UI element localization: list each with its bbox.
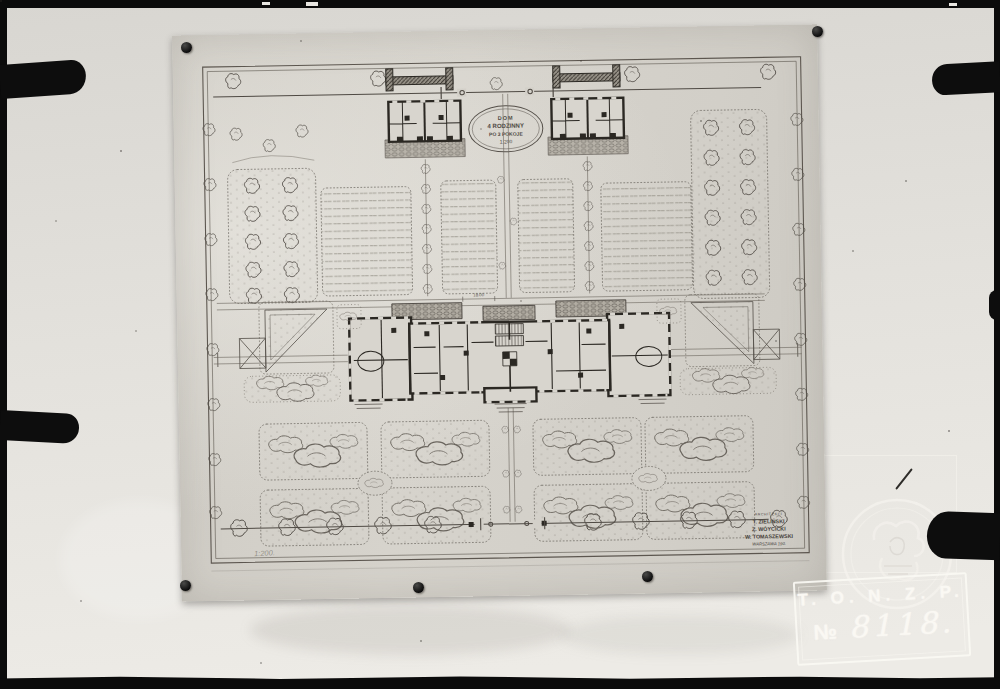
arbor-right	[753, 329, 780, 359]
tree-allee-right	[583, 156, 594, 293]
outbuilding-left	[384, 101, 465, 158]
film-edge-top	[0, 0, 1000, 8]
signature-place: WARSZAWA 190.	[752, 541, 786, 547]
push-pin	[812, 26, 823, 37]
film-edge-bottom	[0, 675, 1000, 689]
orchard-right	[690, 109, 769, 298]
archive-stamp: T. O. N. Z. P. № 8118.	[793, 572, 971, 666]
garden-wall-left	[386, 68, 453, 91]
orchard-left	[227, 125, 318, 304]
flower-bed-left	[244, 375, 340, 403]
film-edge-left	[0, 0, 7, 689]
architect-name: T. ZIELIŃSKI	[753, 517, 785, 525]
emulsion-blob	[0, 59, 87, 99]
emulsion-blob	[931, 61, 1000, 96]
outbuilding-right	[547, 98, 628, 155]
emulsion-blob	[926, 511, 1000, 561]
house-plan	[349, 299, 671, 415]
mat-smudge	[250, 605, 570, 655]
film-edge-right	[994, 0, 1000, 689]
dimension-label: 18.00	[473, 292, 485, 297]
emulsion-blob	[989, 290, 1000, 320]
push-pin	[642, 571, 653, 582]
vegetable-plots	[321, 177, 693, 296]
staircase	[495, 324, 523, 334]
title-cartouche: DOM 4 RODZINNY PO 3 POKOJE 1:200	[468, 105, 543, 152]
cartouche-line1: DOM	[498, 115, 514, 121]
emulsion-blob	[0, 410, 80, 444]
mat-smudge	[560, 615, 800, 655]
dust-specks	[0, 0, 2, 2]
push-pin	[181, 42, 192, 53]
signature-heading: ARCHITEKCI	[755, 512, 783, 516]
push-pin	[180, 580, 191, 591]
cartouche-line3: PO 3 POKOJE	[489, 131, 523, 138]
push-pin	[413, 582, 424, 593]
top-fence	[213, 73, 761, 103]
arbor-left	[239, 338, 266, 368]
cartouche-line2: 4 RODZINNY	[488, 123, 524, 130]
triangle-bed-left	[259, 301, 334, 374]
drawing-sheet: DOM 4 RODZINNY PO 3 POKOJE 1:200	[172, 24, 827, 601]
photo-plate: DOM 4 RODZINNY PO 3 POKOJE 1:200	[0, 0, 1000, 689]
staircase	[495, 336, 523, 346]
garden-wall-right	[553, 65, 620, 88]
cartouche-line4: 1:200	[500, 138, 513, 144]
entry-terrace	[483, 305, 535, 320]
scale-note: 1:200.	[254, 548, 275, 558]
flower-bed-right	[680, 367, 776, 395]
site-plan-drawing: DOM 4 RODZINNY PO 3 POKOJE 1:200	[172, 24, 827, 601]
stamp-inner-border	[798, 577, 966, 660]
tree-allee-left	[421, 159, 432, 296]
architect-name: Z. WÓYCICKI	[752, 525, 786, 533]
architect-name: W. TOMASZEWSKI	[745, 533, 794, 540]
